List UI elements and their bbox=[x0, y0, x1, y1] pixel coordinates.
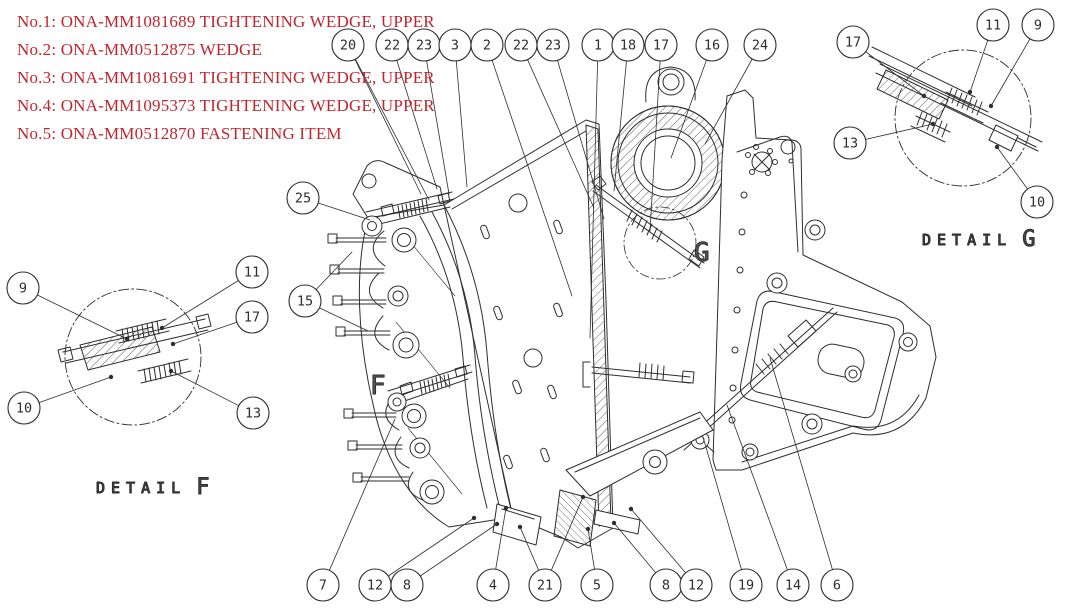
leader-line bbox=[456, 61, 467, 187]
svg-text:5: 5 bbox=[593, 578, 601, 594]
view-marker-f: F bbox=[370, 371, 386, 401]
balloon-10: 10 bbox=[1021, 186, 1053, 218]
balloon-22: 22 bbox=[505, 29, 537, 61]
parts-list-line: No.1: ONA-MM1081689 TIGHTENING WEDGE, UP… bbox=[17, 8, 435, 36]
leader-dot bbox=[586, 527, 590, 531]
svg-text:24: 24 bbox=[752, 38, 768, 54]
balloon-16: 16 bbox=[696, 29, 728, 61]
svg-text:11: 11 bbox=[985, 18, 1001, 34]
svg-text:10: 10 bbox=[16, 401, 32, 417]
svg-text:11: 11 bbox=[244, 265, 260, 281]
balloon-13: 13 bbox=[834, 127, 866, 159]
balloon-14: 14 bbox=[777, 569, 809, 601]
balloon-3: 3 bbox=[439, 29, 471, 61]
balloon-15: 15 bbox=[289, 285, 321, 317]
leader-dot bbox=[504, 506, 508, 510]
balloon-21: 21 bbox=[529, 569, 561, 601]
balloon-17: 17 bbox=[645, 29, 677, 61]
parts-list-line: No.2: ONA-MM0512875 WEDGE bbox=[17, 36, 435, 64]
leader-dot bbox=[922, 94, 926, 98]
leader-line bbox=[171, 371, 239, 406]
leader-dot bbox=[160, 326, 164, 330]
svg-text:16: 16 bbox=[704, 38, 720, 54]
balloon-10: 10 bbox=[8, 392, 40, 424]
leader-dot bbox=[612, 521, 616, 525]
svg-text:14: 14 bbox=[785, 578, 801, 594]
leader-dot bbox=[931, 122, 935, 126]
leader-dot bbox=[472, 516, 476, 520]
svg-text:6: 6 bbox=[833, 578, 841, 594]
parts-list-line: No.4: ONA-MM1095373 TIGHTENING WEDGE, UP… bbox=[17, 92, 435, 120]
balloon-18: 18 bbox=[612, 29, 644, 61]
leader-dot bbox=[518, 525, 522, 529]
leader-dot bbox=[629, 507, 633, 511]
svg-text:23: 23 bbox=[545, 38, 561, 54]
svg-text:1: 1 bbox=[594, 38, 602, 54]
detail-f-view: DETAILF bbox=[58, 289, 211, 500]
svg-text:17: 17 bbox=[845, 35, 861, 51]
view-marker-g: G bbox=[694, 238, 710, 268]
detail-f-label: DETAILF bbox=[96, 475, 209, 500]
leader-dot bbox=[171, 342, 175, 346]
leader-line bbox=[991, 39, 1030, 106]
balloon-5: 5 bbox=[581, 569, 613, 601]
balloon-23: 23 bbox=[537, 29, 569, 61]
balloon-9: 9 bbox=[1022, 9, 1054, 41]
svg-text:18: 18 bbox=[620, 38, 636, 54]
svg-text:17: 17 bbox=[653, 38, 669, 54]
leader-line bbox=[37, 295, 127, 339]
leader-line bbox=[316, 252, 352, 290]
leader-dot bbox=[989, 104, 993, 108]
leader-line bbox=[631, 509, 686, 573]
balloon-8: 8 bbox=[391, 569, 423, 601]
svg-text:3: 3 bbox=[451, 38, 459, 54]
leader-line bbox=[173, 322, 237, 344]
leader-dot bbox=[169, 369, 173, 373]
leader-dot bbox=[995, 145, 999, 149]
svg-text:2: 2 bbox=[483, 38, 491, 54]
svg-text:9: 9 bbox=[1034, 18, 1042, 34]
balloon-17: 17 bbox=[837, 26, 869, 58]
balloon-11: 11 bbox=[236, 256, 268, 288]
leader-line bbox=[162, 281, 238, 329]
leader-line bbox=[39, 377, 111, 403]
balloon-17: 17 bbox=[236, 301, 268, 333]
parts-list-line: No.5: ONA-MM0512870 FASTENING ITEM bbox=[17, 120, 435, 148]
balloon-12: 12 bbox=[359, 569, 391, 601]
leader-dot bbox=[109, 375, 113, 379]
balloon-4: 4 bbox=[477, 569, 509, 601]
leader-line bbox=[329, 419, 395, 570]
frame-side-plate bbox=[713, 90, 936, 470]
balloon-13: 13 bbox=[237, 397, 269, 429]
svg-text:8: 8 bbox=[662, 578, 670, 594]
svg-text:12: 12 bbox=[367, 578, 383, 594]
svg-text:8: 8 bbox=[403, 578, 411, 594]
svg-text:22: 22 bbox=[513, 38, 529, 54]
balloon-1: 1 bbox=[582, 29, 614, 61]
svg-text:10: 10 bbox=[1029, 195, 1045, 211]
leader-line bbox=[420, 524, 497, 576]
detail-g-label: DETAILG bbox=[922, 227, 1035, 252]
assembly-drawing-page: No.1: ONA-MM1081689 TIGHTENING WEDGE, UP… bbox=[0, 0, 1065, 608]
leader-line bbox=[970, 40, 988, 92]
balloon-11: 11 bbox=[977, 9, 1009, 41]
balloon-25: 25 bbox=[287, 182, 319, 214]
leader-line bbox=[388, 518, 474, 576]
balloon-24: 24 bbox=[744, 29, 776, 61]
svg-text:25: 25 bbox=[295, 191, 311, 207]
svg-text:19: 19 bbox=[738, 578, 754, 594]
leader-dot bbox=[968, 90, 972, 94]
leader-line bbox=[997, 147, 1028, 189]
parts-list-line: No.3: ONA-MM1081691 TIGHTENING WEDGE, UP… bbox=[17, 64, 435, 92]
svg-text:7: 7 bbox=[319, 578, 327, 594]
svg-text:15: 15 bbox=[297, 294, 313, 310]
svg-text:13: 13 bbox=[245, 406, 261, 422]
svg-text:12: 12 bbox=[688, 578, 704, 594]
leader-dot bbox=[495, 522, 499, 526]
balloon-7: 7 bbox=[307, 569, 339, 601]
svg-text:13: 13 bbox=[842, 136, 858, 152]
balloon-9: 9 bbox=[7, 272, 39, 304]
svg-text:17: 17 bbox=[244, 310, 260, 326]
balloon-12: 12 bbox=[680, 569, 712, 601]
balloon-19: 19 bbox=[730, 569, 762, 601]
detail-g-view: DETAILG bbox=[869, 47, 1042, 252]
balloon-2: 2 bbox=[471, 29, 503, 61]
balloon-6: 6 bbox=[821, 569, 853, 601]
bearing-housing bbox=[611, 67, 725, 220]
svg-text:21: 21 bbox=[537, 578, 553, 594]
svg-text:4: 4 bbox=[489, 578, 497, 594]
svg-text:9: 9 bbox=[19, 281, 27, 297]
leader-dot bbox=[581, 495, 585, 499]
balloon-8: 8 bbox=[650, 569, 682, 601]
leader-dot bbox=[125, 337, 129, 341]
parts-list: No.1: ONA-MM1081689 TIGHTENING WEDGE, UP… bbox=[17, 8, 435, 148]
